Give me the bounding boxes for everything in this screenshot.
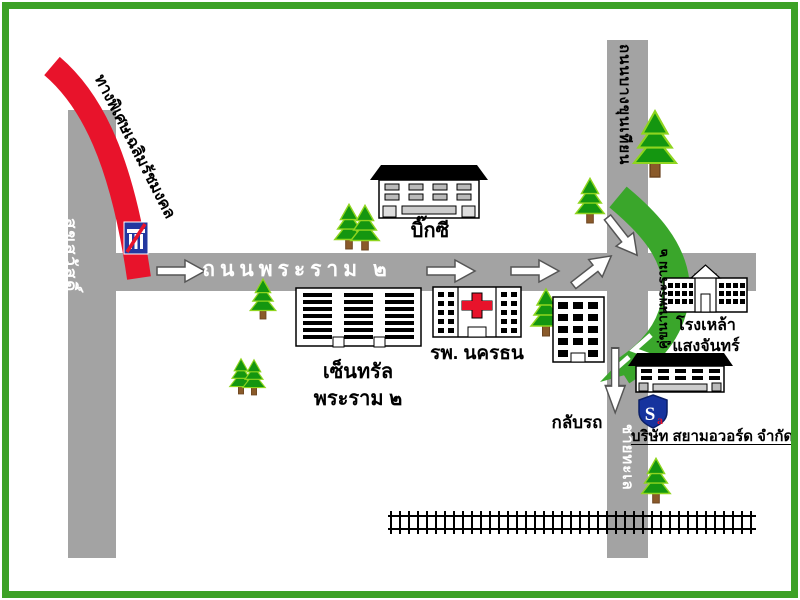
- distillery-label-line1: โรงเหล้า: [676, 317, 736, 335]
- tree-icon: [351, 205, 380, 250]
- map-canvas: S a ถนนพระราม ๒ สุขสวัสดิ์ ถนนบางขุนเทีย…: [0, 0, 800, 600]
- tree-icon: [576, 178, 605, 223]
- tree-icon: [243, 360, 266, 395]
- main-road-label: ถนนพระราม ๒: [202, 258, 391, 281]
- logo-letter-a: a: [657, 413, 663, 427]
- uturn-label: กลับรถ: [552, 414, 603, 433]
- hospital-label: รพ. นครธน: [430, 344, 524, 365]
- railway-track: [388, 516, 756, 529]
- bigc-building: [370, 165, 488, 218]
- map-graphics: S a: [0, 0, 800, 600]
- company-label: บริษัท สยามอวอร์ด จำกัด: [631, 429, 793, 446]
- logo-letter-s: S: [645, 404, 656, 425]
- bigc-label: บิ๊กซี: [411, 220, 449, 242]
- distillery-label-line2: แสงจันทร์: [672, 338, 739, 356]
- left-road-label: สุขสวัสดิ์: [60, 218, 79, 293]
- company-building: [628, 353, 733, 392]
- central-label-line2: พระราม ๒: [314, 388, 403, 410]
- top-right-road-label: ถนนบางขุนเทียน: [616, 44, 633, 165]
- frontage-road-label: คู่ขนานพระราม ๒: [656, 249, 670, 349]
- central-label-line1: เซ็นทรัล: [323, 361, 393, 383]
- hospital-building: [433, 287, 521, 337]
- central-building: [296, 288, 421, 347]
- office-building: [553, 297, 604, 362]
- expressway-sign-icon: [124, 222, 148, 254]
